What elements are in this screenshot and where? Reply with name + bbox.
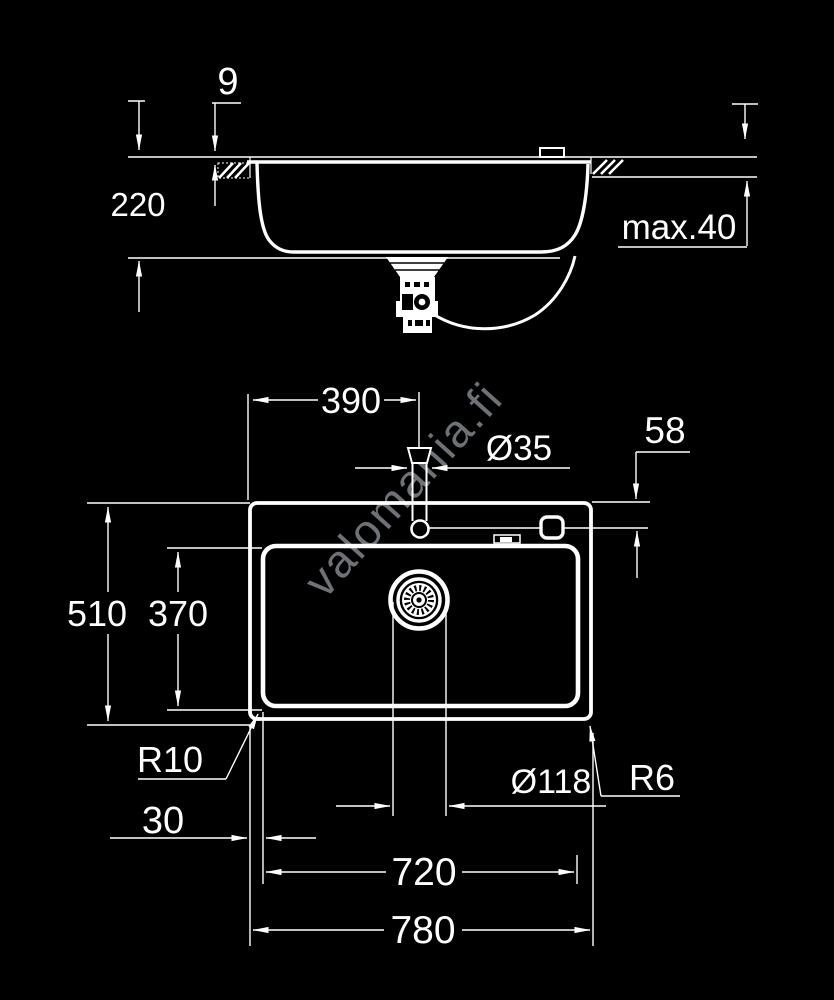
dim-label-58: 58 (644, 410, 685, 451)
drain-strainer-icon (391, 572, 448, 629)
overflow-hose (433, 256, 575, 329)
sink-dimension-diagram: valomania.fi (0, 0, 834, 1000)
tap-tube-flare (408, 448, 431, 463)
dim-label-r10: R10 (137, 739, 203, 780)
section-dimensions (128, 101, 758, 312)
dim-label-780: 780 (390, 909, 455, 952)
worktop-hatch-right (593, 160, 623, 174)
accessory-cover-plan (541, 517, 563, 538)
tap-hole-icon (412, 521, 429, 538)
dim-label-9: 9 (217, 61, 238, 103)
dim-label-o35: Ø35 (486, 429, 552, 468)
dim-label-o118: Ø118 (511, 763, 592, 801)
dim-label-720: 720 (391, 851, 456, 894)
dim-label-510: 510 (67, 593, 127, 634)
worktop-hatch-left (218, 163, 250, 178)
technical-drawing-canvas: valomania.fi (0, 0, 834, 1000)
dim-label-220: 220 (110, 186, 165, 223)
bowl-profile (257, 163, 588, 252)
accessory-cover-section (540, 148, 564, 157)
dim-label-390: 390 (321, 380, 381, 421)
drain-assembly-icon (386, 257, 448, 333)
dim-label-30: 30 (142, 800, 184, 842)
dim-label-370: 370 (148, 593, 208, 634)
dim-label-max40: max.40 (622, 208, 737, 247)
dim-label-r6: R6 (629, 757, 675, 798)
